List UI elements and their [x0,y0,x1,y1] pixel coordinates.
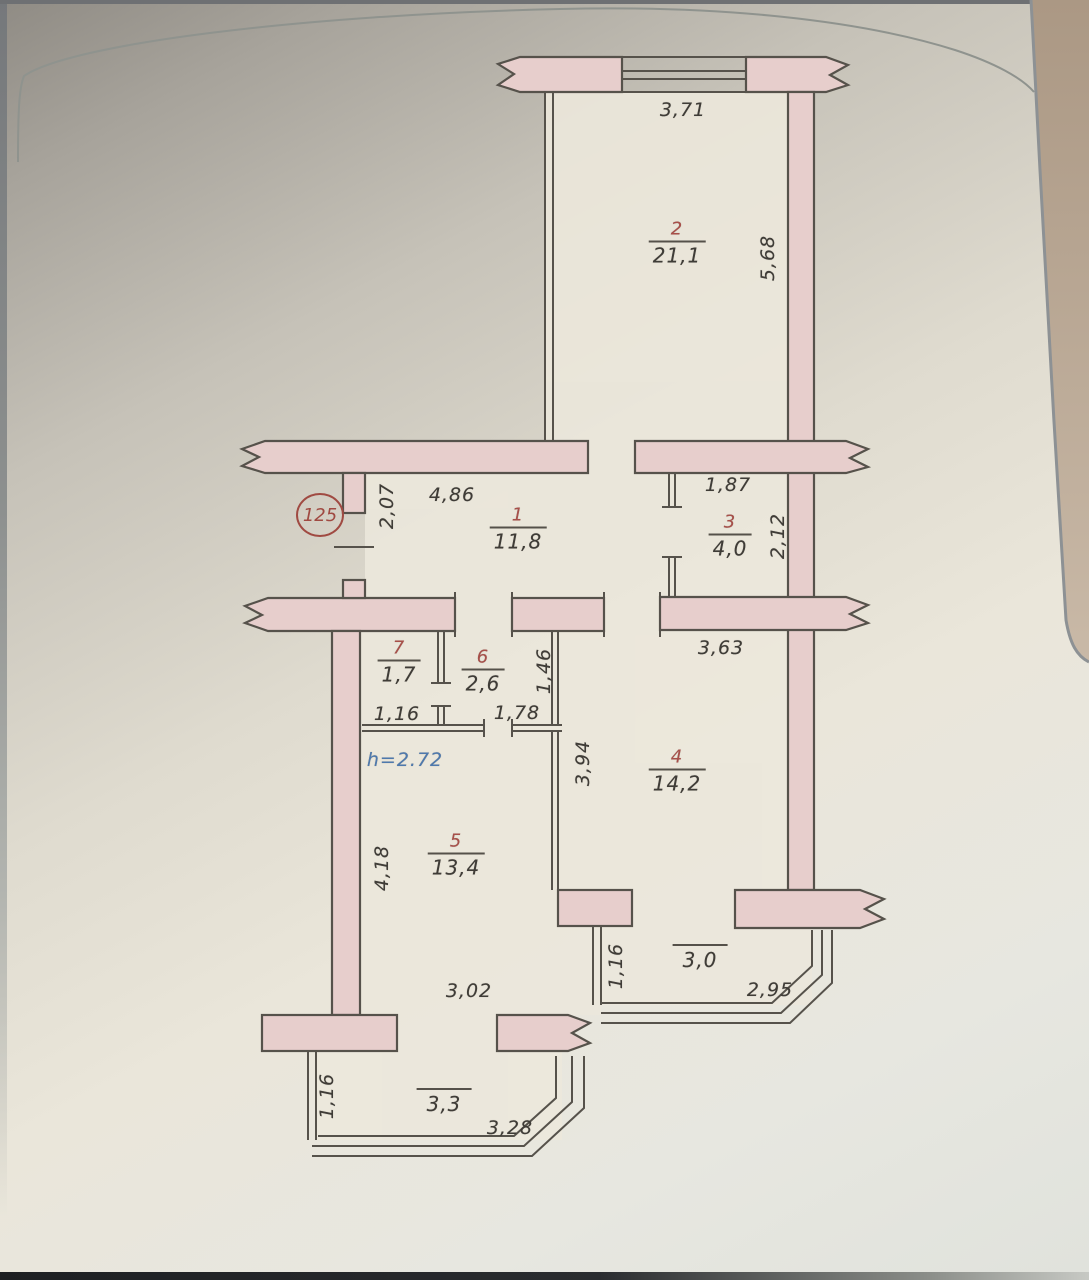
wall-balcony-right-block [558,890,632,926]
dim-balcony-right-width: 2,95 [747,979,793,1001]
dim-balcony-right-side: 1,16 [605,943,627,989]
balcony-area: 3,0 [673,944,728,972]
apartment-number: 125 [303,505,337,526]
dim-room6-right-side: 1,46 [533,648,555,694]
room-number: 3 [709,512,752,536]
table-background-wedge [1031,0,1089,662]
room-label-7: 7 1,7 [382,638,417,687]
room-label-1: 1 11,8 [494,505,543,554]
room-number: 1 [490,505,547,529]
balcony-label-right: 3,0 [673,944,728,972]
photographed-floorplan-page: { "page": { "apartment_badge": "125", "c… [0,0,1089,1280]
wall-lower-left [245,598,455,631]
wall-mid-left [242,441,588,473]
dim-room2-depth: 5,68 [757,235,779,281]
dim-hall-entry-side: 2,07 [376,483,398,529]
wall-right [788,92,814,890]
room-label-4: 4 14,2 [653,747,702,796]
wall-balcony-left-flag [497,1015,590,1051]
room-number: 4 [649,747,706,771]
dim-room5-left-side: 4,18 [371,845,393,891]
room-area: 14,2 [653,771,702,796]
dim-room3-depth: 2,12 [767,513,789,559]
wall-entry-upper [343,473,365,513]
wall-top-right [746,57,848,92]
dim-room2-width: 3,71 [660,99,706,121]
wall-room3-bottom [660,597,868,630]
dim-balcony-left-width: 3,28 [487,1117,533,1139]
dim-room7-width: 1,16 [374,703,420,725]
apartment-number-badge: 125 [296,493,344,537]
wall-top-left [498,57,622,92]
room-number: 7 [378,638,421,662]
room-area: 2,6 [466,671,501,696]
wall-balcony-left-block [262,1015,397,1051]
dim-hall-width: 4,86 [429,484,475,506]
dim-room4-left-side: 3,94 [572,740,594,786]
room-area: 1,7 [382,662,417,687]
dim-room4-width: 3,63 [698,637,744,659]
dim-balcony-left-side: 1,16 [316,1073,338,1119]
balcony-label-left: 3,3 [417,1088,472,1116]
dim-room3-width: 1,87 [705,474,751,496]
ceiling-height-note: h=2.72 [367,749,443,771]
room-number: 2 [649,219,706,243]
room-label-3: 3 4,0 [713,512,748,561]
floor-plan-canvas [0,0,1089,1280]
room-label-5: 5 13,4 [432,831,481,880]
window-room2 [622,57,746,92]
wall-mid-right [635,441,868,473]
room-area: 11,8 [494,529,543,554]
wall-lower-mid [512,598,604,631]
room-label-2: 2 21,1 [653,219,702,268]
room-area: 21,1 [653,243,702,268]
dim-room5-width: 3,02 [446,980,492,1002]
room-number: 6 [462,647,505,671]
balcony-area: 3,3 [417,1088,472,1116]
photo-bottom-edge [0,1272,1089,1280]
wall-entry-lower [343,580,365,598]
wall-left-column [332,631,360,1015]
wall-bottom-flag [735,890,884,928]
room-area: 4,0 [713,536,748,561]
room-label-6: 6 2,6 [466,647,501,696]
room-number: 5 [428,831,485,855]
room-area: 13,4 [432,855,481,880]
dim-room6-width: 1,78 [494,702,540,724]
